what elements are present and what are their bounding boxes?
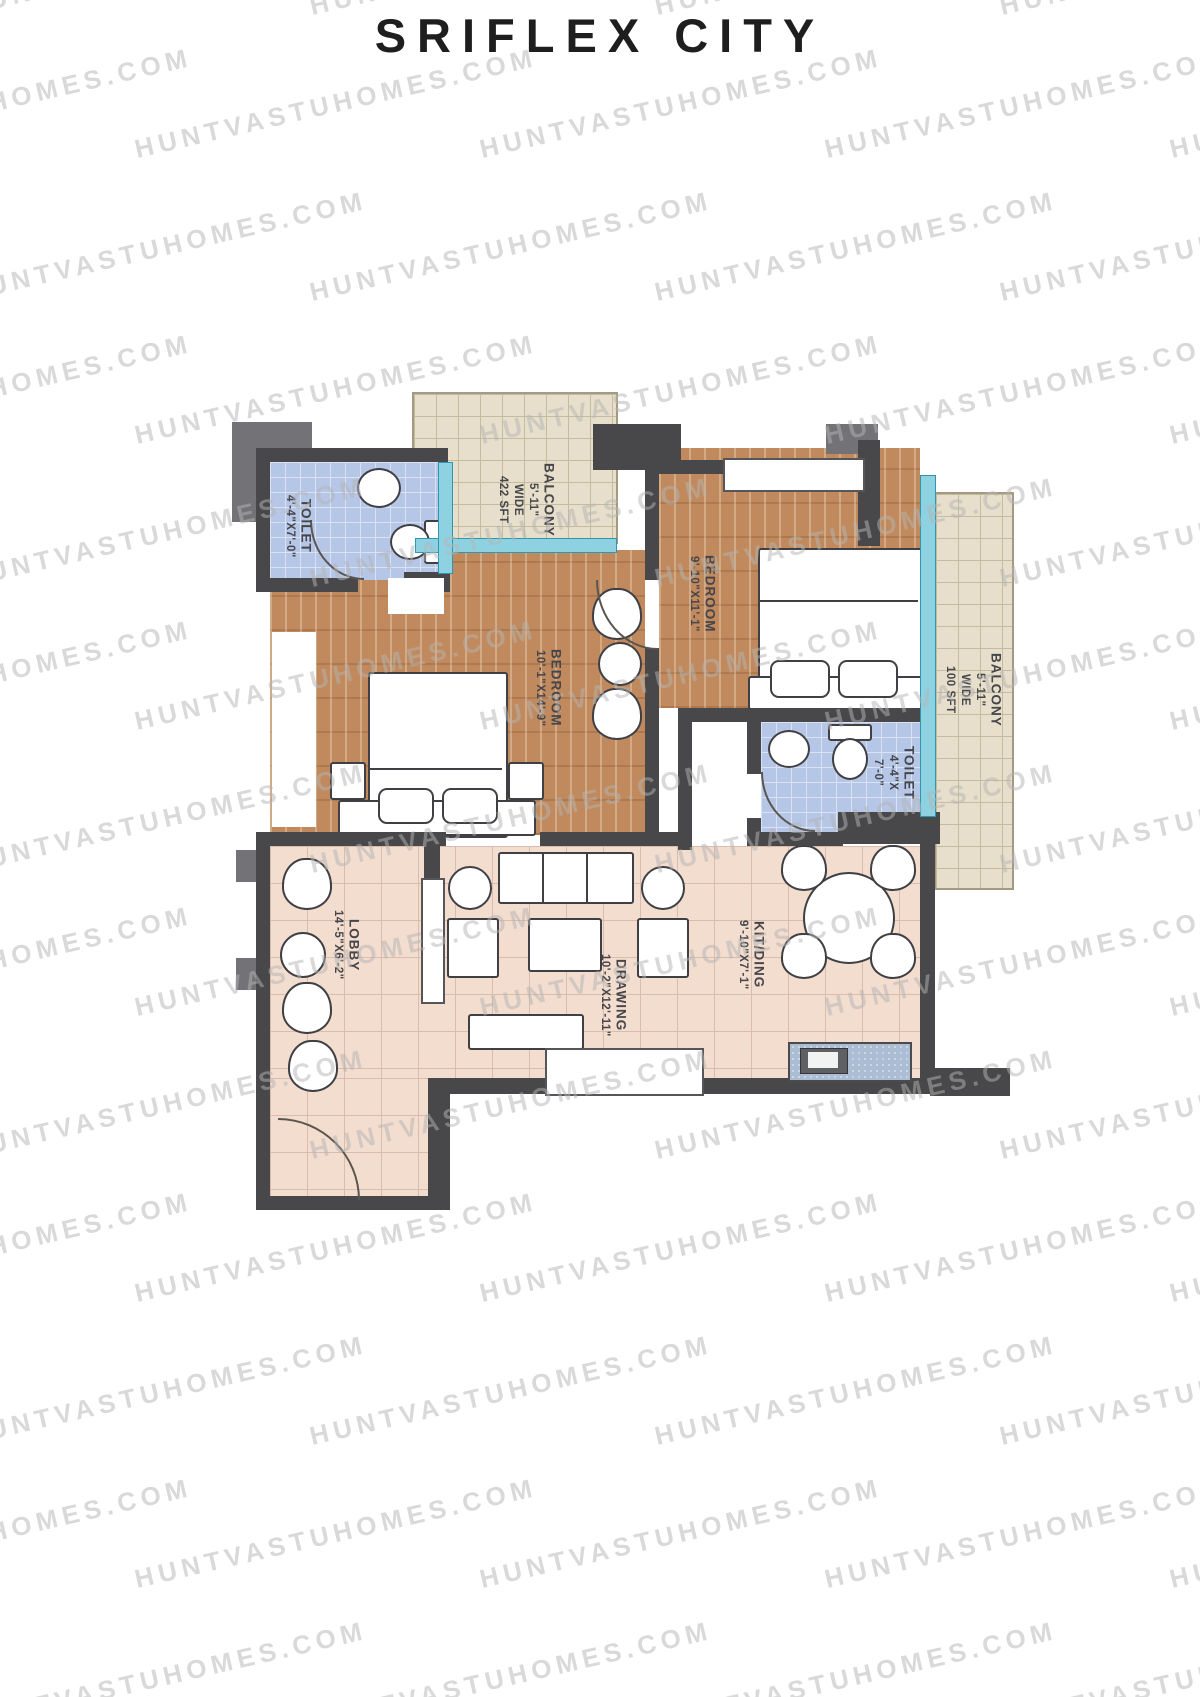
window-bedroom-right-top — [723, 458, 865, 492]
lounge-chair — [282, 858, 332, 910]
floor-plan: TOILET 4'-4"X7'-0" BALCONY 5'-11" WIDE 4… — [0, 0, 1200, 1697]
side-table — [330, 762, 366, 800]
room-label-lobby: LOBBY 14'-5"X6'-2" — [330, 895, 362, 995]
room-dim: WIDE — [957, 615, 972, 765]
wash-basin — [357, 468, 401, 508]
room-name: BEDROOM — [701, 540, 719, 648]
window-balcony-right — [920, 475, 936, 817]
wall — [645, 448, 659, 580]
tv-console — [468, 1014, 584, 1050]
wall — [678, 708, 692, 850]
wall — [448, 1078, 548, 1094]
room-dim: 100 SFT — [942, 615, 957, 765]
room-dim: 4'-4"X7'-0" — [282, 480, 297, 572]
partition — [421, 878, 445, 1004]
room-dim: 9'-10"X7'-1" — [735, 903, 750, 1007]
room-label-kitchen: KIT/DING 9'-10"X7'-1" — [735, 903, 767, 1007]
dining-chair — [781, 933, 827, 979]
wall — [236, 958, 258, 990]
dining-chair — [870, 933, 916, 979]
wash-basin — [768, 730, 810, 768]
lounge-chair — [592, 688, 642, 740]
room-name: BEDROOM — [547, 628, 565, 748]
room-dim: WIDE — [510, 450, 525, 550]
armchair — [447, 918, 499, 978]
wall — [256, 448, 270, 592]
wardrobe-nook — [272, 632, 316, 827]
wall — [256, 578, 358, 592]
window-toilet-balcony — [438, 462, 453, 574]
dining-chair — [870, 845, 916, 891]
room-label-toilet-left: TOILET 4'-4"X7'-0" — [282, 480, 314, 572]
window-drawing-bottom — [545, 1048, 704, 1096]
room-label-balcony-top: BALCONY 5'-11" WIDE 422 SFT — [495, 450, 557, 550]
room-dim: 4'-4"X — [885, 740, 900, 806]
wall — [858, 440, 880, 546]
wall — [424, 832, 440, 878]
room-name: BALCONY — [987, 615, 1005, 765]
kitchen-sink-basin — [808, 1052, 838, 1068]
room-name: TOILET — [900, 740, 918, 806]
room-name: KIT/DING — [750, 903, 768, 1007]
wall — [645, 648, 659, 846]
room-label-toilet-right: TOILET 4'-4"X 7'-0" — [870, 740, 917, 806]
wall — [747, 722, 761, 774]
room-label-bedroom-left: BEDROOM 10'-1"X14'-9" — [532, 628, 564, 748]
room-dim: 7'-0" — [870, 740, 885, 806]
wall — [747, 832, 843, 846]
bed-blanket-line — [370, 768, 502, 770]
wall — [655, 460, 725, 474]
lounge-chair — [288, 1040, 338, 1092]
room-dim: 14'-5"X6'-2" — [330, 895, 345, 995]
wall — [690, 708, 930, 722]
room-dim: 422 SFT — [495, 450, 510, 550]
pillow — [442, 788, 498, 824]
lounge-chair — [282, 982, 332, 1034]
stool — [641, 866, 685, 910]
room-label-balcony-right: BALCONY 5'-11" WIDE 100 SFT — [942, 615, 1004, 765]
room-label-drawing: DRAWING 10'-2"X12'-11" — [597, 935, 629, 1055]
wall — [256, 846, 270, 1208]
page: SRIFLEX CITY — [0, 0, 1200, 1697]
room-name: BALCONY — [540, 450, 558, 550]
pillow — [770, 660, 830, 698]
room-dim: 5'-11" — [525, 450, 540, 550]
room-name: TOILET — [297, 480, 315, 572]
round-table — [280, 932, 326, 978]
stool — [448, 866, 492, 910]
pillow — [378, 788, 434, 824]
wall — [428, 1078, 450, 1210]
pillow — [838, 660, 898, 698]
dining-chair — [781, 845, 827, 891]
room-name: LOBBY — [345, 895, 363, 995]
side-table — [508, 762, 544, 800]
room-dim: 10'-1"X14'-9" — [532, 628, 547, 748]
room-name: DRAWING — [612, 935, 630, 1055]
wall — [540, 832, 692, 846]
wall — [256, 448, 448, 462]
wall — [930, 1068, 1010, 1096]
wall — [232, 422, 259, 522]
coffee-table — [528, 918, 602, 972]
sofa — [498, 852, 634, 904]
room-dim: 10'-2"X12'-11" — [597, 935, 612, 1055]
sofa-cushion-line — [586, 854, 588, 902]
wall — [256, 832, 446, 846]
armchair — [637, 918, 689, 978]
wall — [920, 843, 935, 1078]
round-table — [598, 642, 642, 686]
room-label-bedroom-right: BEDROOM 9'-10"X11'-1" — [686, 540, 718, 648]
bed-bench — [338, 800, 536, 836]
room-dim: 9'-10"X11'-1" — [686, 540, 701, 648]
toilet-wc — [832, 738, 868, 780]
door-threshold — [388, 578, 444, 614]
sofa-cushion-line — [542, 854, 544, 902]
wall — [236, 850, 258, 882]
room-dim: 5'-11" — [972, 615, 987, 765]
bed-blanket-line — [760, 600, 918, 602]
